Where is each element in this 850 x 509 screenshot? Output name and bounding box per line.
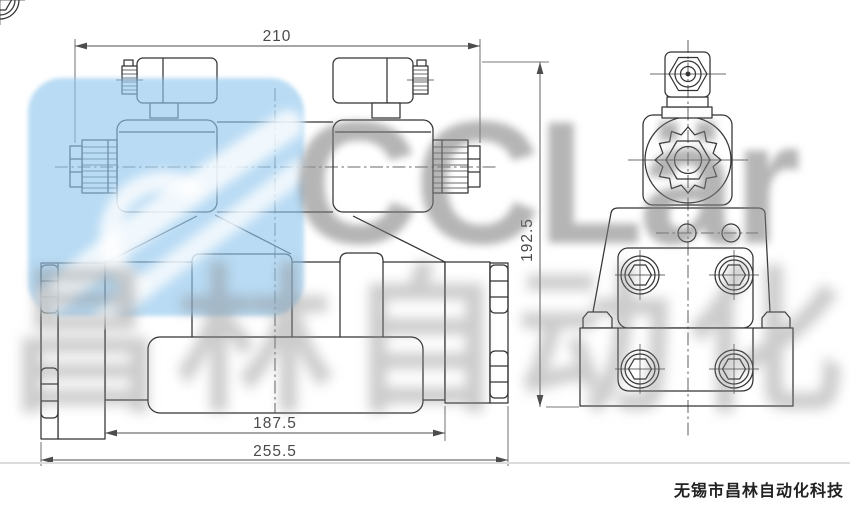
- dim-210: 210: [263, 28, 292, 45]
- footer-divider: [0, 462, 850, 464]
- company-name: 无锡市昌林自动化科技: [674, 477, 844, 501]
- front-view: [41, 58, 508, 439]
- hex-socket-bolt: [0, 0, 25, 25]
- solenoid-left: [70, 58, 217, 212]
- valve-drawing-page: 210 192.5 187.5 255.5 CCLär 昌林自动化: [0, 0, 850, 509]
- solenoid-right: [333, 58, 480, 212]
- dim-255-5: 255.5: [253, 443, 297, 460]
- dim-187-5: 187.5: [253, 415, 297, 432]
- dim-192-5: 192.5: [519, 218, 536, 262]
- solenoid-valve-drawing: 210 192.5 187.5 255.5: [0, 0, 850, 509]
